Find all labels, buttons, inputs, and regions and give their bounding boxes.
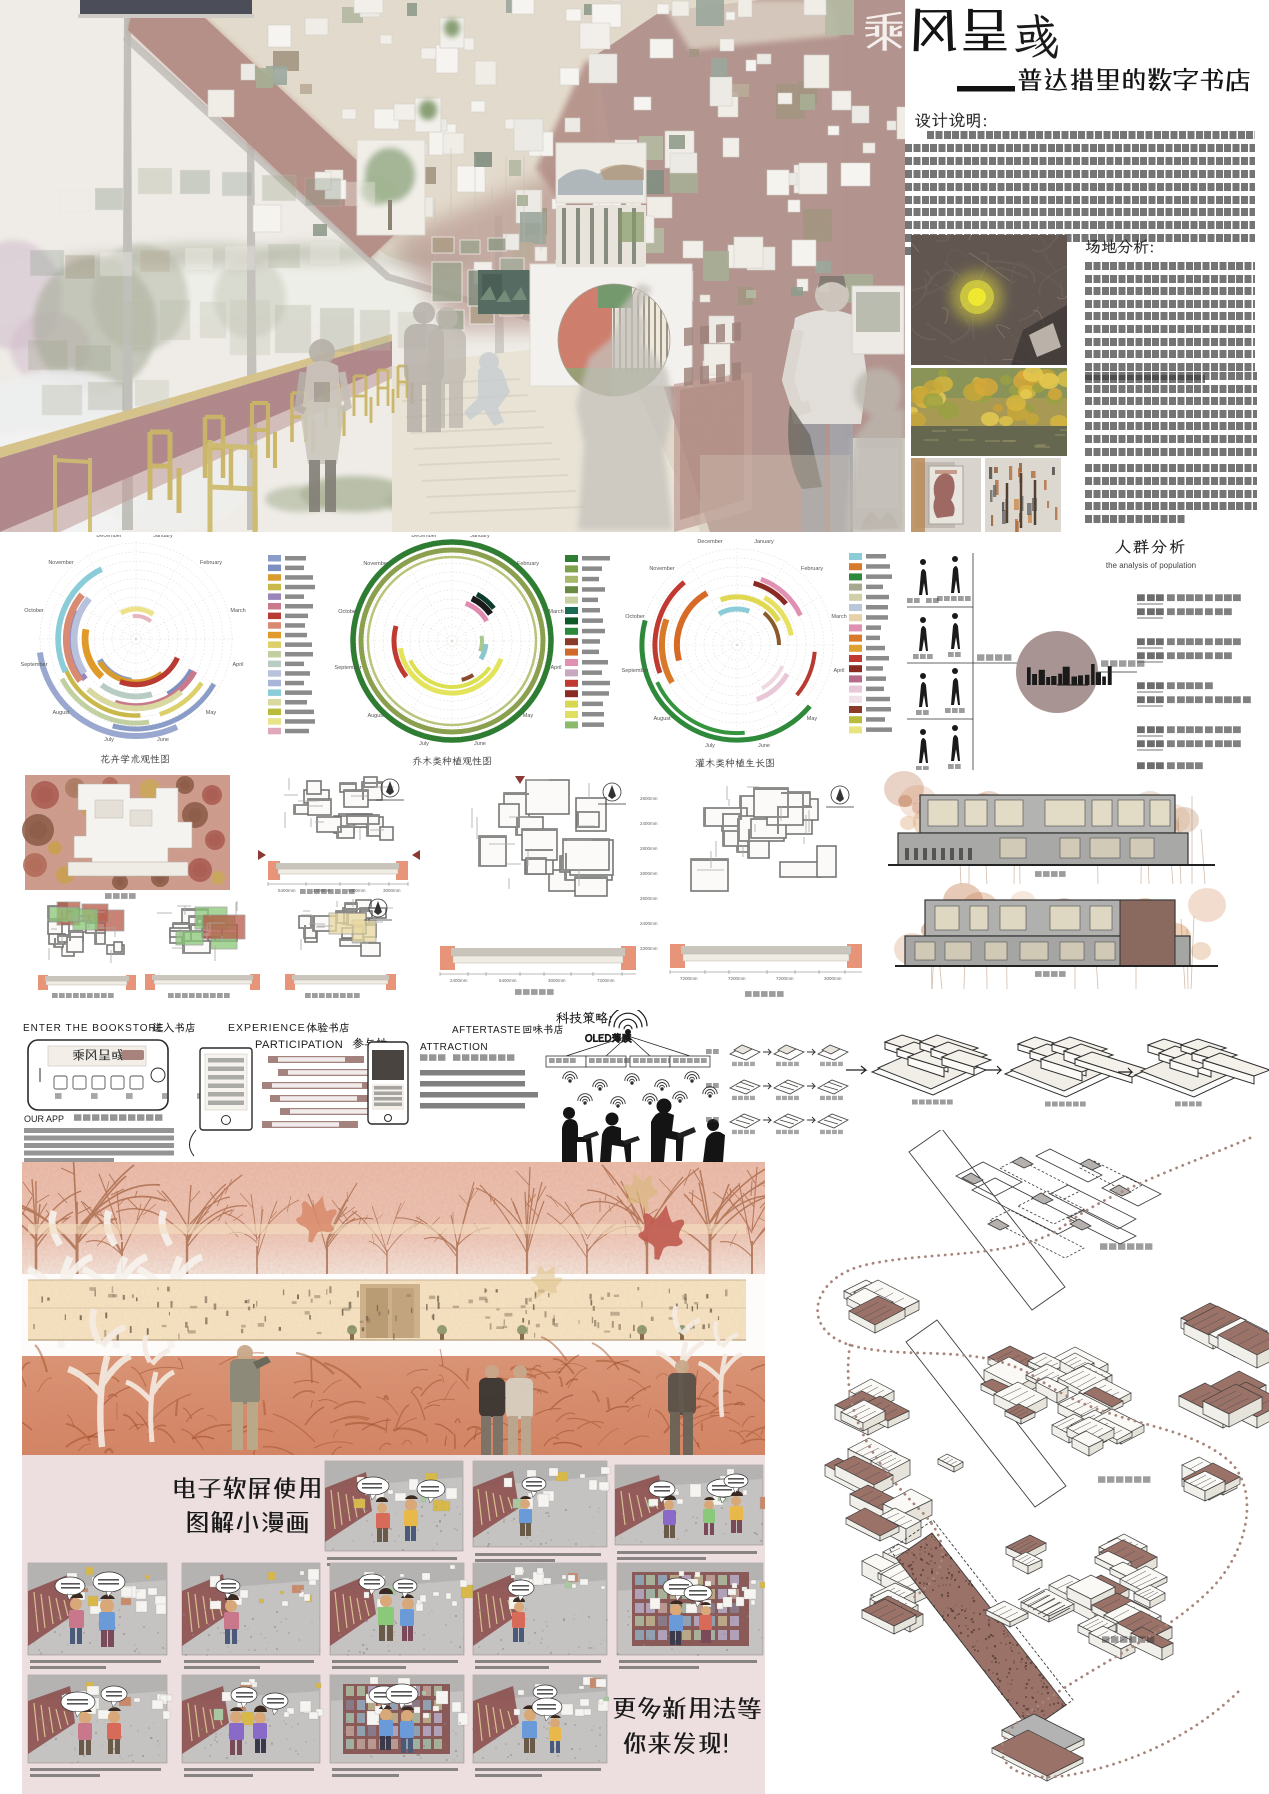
svg-text:3300mm: 3300mm bbox=[640, 946, 658, 951]
svg-text:March: March bbox=[831, 614, 846, 620]
svg-text:the analysis of population: the analysis of population bbox=[1106, 561, 1196, 570]
svg-text:June: June bbox=[157, 737, 169, 743]
svg-text:March: March bbox=[230, 608, 245, 614]
svg-text:February: February bbox=[517, 561, 539, 567]
svg-text:November: November bbox=[363, 561, 389, 567]
svg-text:August: August bbox=[653, 716, 671, 722]
svg-text:3000mm: 3000mm bbox=[824, 976, 842, 981]
svg-text:7200mm: 7200mm bbox=[597, 978, 615, 983]
svg-text:May: May bbox=[523, 713, 534, 719]
svg-text:October: October bbox=[338, 609, 358, 615]
svg-text:2400mm: 2400mm bbox=[640, 921, 658, 926]
svg-text:7200mm: 7200mm bbox=[680, 976, 698, 981]
svg-text:April: April bbox=[232, 662, 243, 668]
svg-text:June: June bbox=[758, 743, 770, 749]
svg-text:July: July bbox=[104, 737, 114, 743]
svg-text:ENTER THE BOOKSTORE: ENTER THE BOOKSTORE bbox=[23, 1023, 164, 1034]
svg-text:October: October bbox=[625, 614, 645, 620]
svg-text:2800mm: 2800mm bbox=[640, 796, 658, 801]
svg-text:3000mm: 3000mm bbox=[383, 888, 401, 893]
svg-text:September: September bbox=[622, 668, 649, 674]
svg-text:November: November bbox=[649, 566, 675, 572]
svg-text:AFTERTASTE: AFTERTASTE bbox=[452, 1025, 521, 1036]
svg-text:November: November bbox=[48, 560, 74, 566]
svg-text:December: December bbox=[96, 535, 122, 539]
svg-text:August: August bbox=[367, 713, 385, 719]
svg-text:2400mm: 2400mm bbox=[450, 978, 468, 983]
svg-text:2800mm: 2800mm bbox=[640, 846, 658, 851]
svg-text:2800mm: 2800mm bbox=[640, 896, 658, 901]
svg-text:December: December bbox=[697, 539, 723, 545]
svg-text:July: July bbox=[419, 741, 429, 747]
svg-text:April: April bbox=[833, 668, 844, 674]
svg-text:March: March bbox=[548, 609, 563, 615]
svg-text:August: August bbox=[52, 710, 70, 716]
svg-text:ATTRACTION: ATTRACTION bbox=[420, 1042, 488, 1053]
svg-text:5400mm: 5400mm bbox=[499, 978, 517, 983]
svg-text:January: January bbox=[754, 539, 774, 545]
svg-text:2400mm: 2400mm bbox=[640, 821, 658, 826]
svg-text:December: December bbox=[411, 535, 437, 539]
svg-text:May: May bbox=[807, 716, 818, 722]
svg-text:January: January bbox=[153, 535, 173, 539]
svg-text:2800mm: 2800mm bbox=[640, 871, 658, 876]
svg-text:February: February bbox=[200, 560, 222, 566]
svg-text:September: September bbox=[335, 665, 362, 671]
svg-text:July: July bbox=[705, 743, 715, 749]
svg-text:January: January bbox=[470, 535, 490, 539]
svg-text:May: May bbox=[206, 710, 217, 716]
svg-text:June: June bbox=[474, 741, 486, 747]
svg-text:3000mm: 3000mm bbox=[548, 978, 566, 983]
svg-text:7200mm: 7200mm bbox=[776, 976, 794, 981]
svg-text:OUR APP: OUR APP bbox=[24, 1114, 64, 1124]
svg-text:October: October bbox=[24, 608, 44, 614]
svg-text:September: September bbox=[21, 662, 48, 668]
svg-text:7200mm: 7200mm bbox=[728, 976, 746, 981]
svg-text:5400mm: 5400mm bbox=[278, 888, 296, 893]
svg-text:February: February bbox=[801, 566, 823, 572]
svg-text:EXPERIENCE: EXPERIENCE bbox=[228, 1022, 306, 1034]
svg-text:PARTICIPATION: PARTICIPATION bbox=[255, 1039, 343, 1051]
svg-text:April: April bbox=[550, 665, 561, 671]
